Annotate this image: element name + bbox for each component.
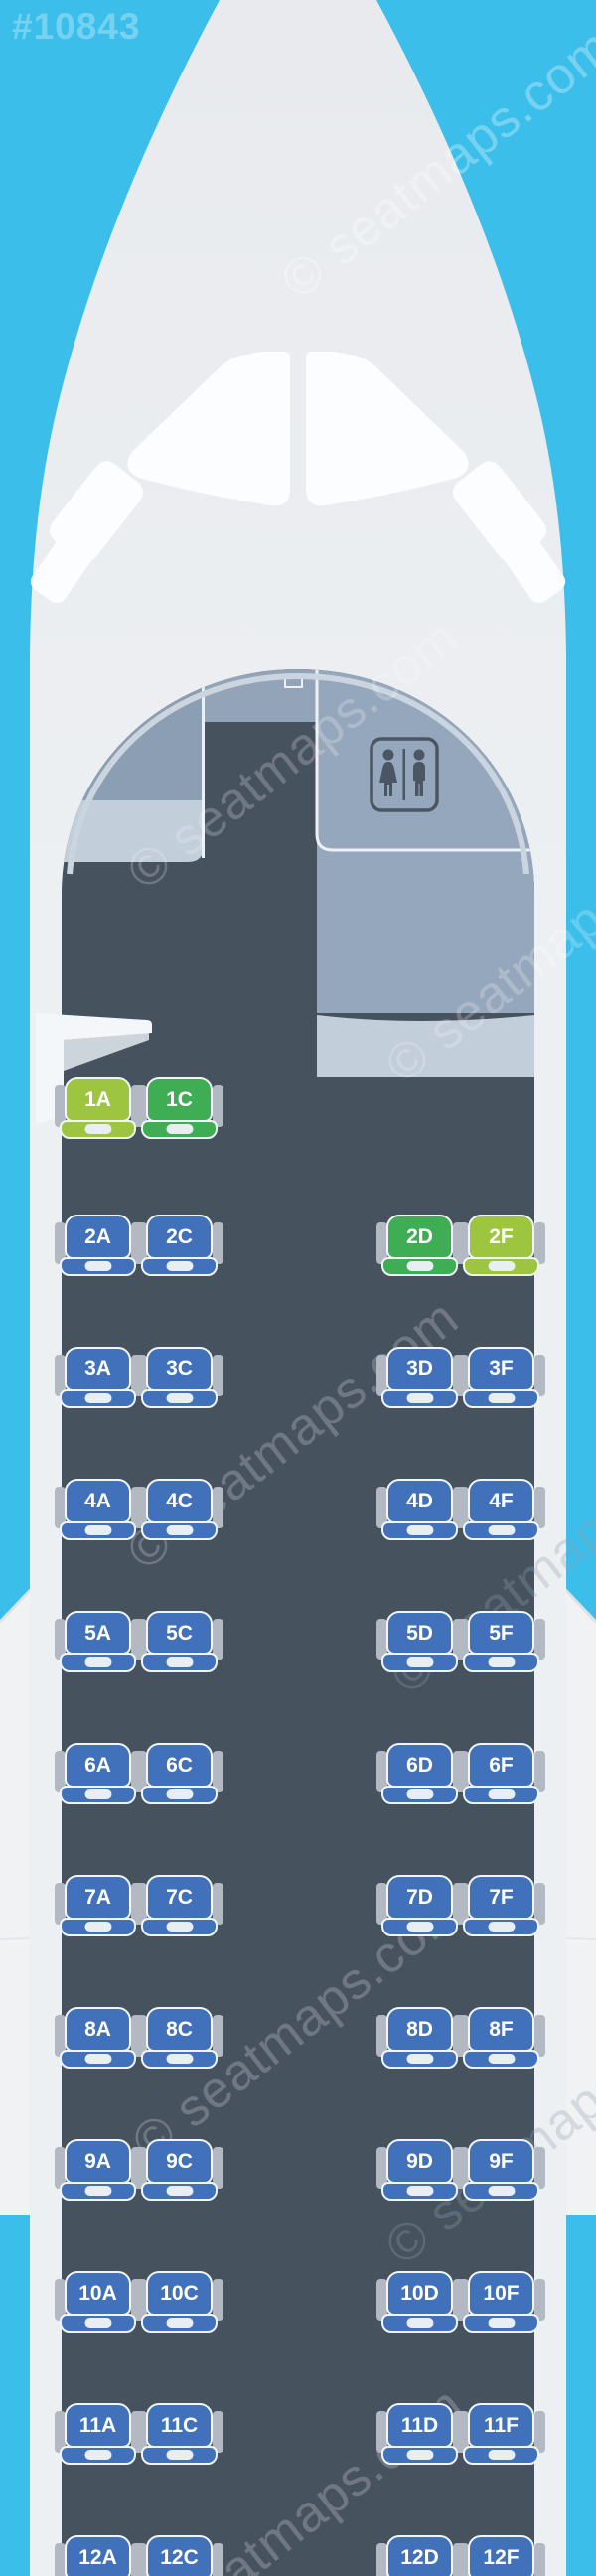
seat-12d[interactable]: 12D xyxy=(386,2535,454,2576)
seat-label: 12A xyxy=(65,2535,131,2576)
seat-7f[interactable]: 7F xyxy=(468,1875,535,1937)
seat-label: 5A xyxy=(65,1611,131,1655)
seat-label: 3A xyxy=(65,1347,131,1391)
seatmap-canvas: #10843 © seatmaps.com© seatmaps.com© sea… xyxy=(0,0,596,2576)
seat-label: 2A xyxy=(65,1215,131,1259)
seat-4a[interactable]: 4A xyxy=(65,1479,132,1541)
seat-cushion-tab xyxy=(167,2318,194,2328)
seat-label: 3D xyxy=(386,1347,453,1391)
seat-label: 1C xyxy=(146,1077,213,1122)
seat-cushion-tab xyxy=(85,1789,112,1799)
seat-label: 11A xyxy=(65,2403,131,2448)
seat-label: 10D xyxy=(386,2271,453,2316)
seat-5d[interactable]: 5D xyxy=(386,1611,454,1673)
seat-label: 9C xyxy=(146,2139,213,2184)
seat-3a[interactable]: 3A xyxy=(65,1347,132,1409)
seat-label: 4C xyxy=(146,1479,213,1523)
seat-label: 8F xyxy=(468,2007,534,2052)
seat-9a[interactable]: 9A xyxy=(65,2139,132,2202)
seat-cushion-tab xyxy=(167,1261,194,1271)
seat-7d[interactable]: 7D xyxy=(386,1875,454,1937)
seat-label: 10C xyxy=(146,2271,213,2316)
seat-6a[interactable]: 6A xyxy=(65,1743,132,1805)
seat-cushion-tab xyxy=(167,1657,194,1667)
seat-10d[interactable]: 10D xyxy=(386,2271,454,2334)
seat-12f[interactable]: 12F xyxy=(468,2535,535,2576)
seat-cushion-tab xyxy=(167,2450,194,2460)
seat-10c[interactable]: 10C xyxy=(146,2271,214,2334)
seat-3c[interactable]: 3C xyxy=(146,1347,214,1409)
seat-9d[interactable]: 9D xyxy=(386,2139,454,2202)
seat-label: 11C xyxy=(146,2403,213,2448)
seat-cushion-tab xyxy=(407,2186,434,2196)
seat-cushion-tab xyxy=(489,1393,516,1403)
seat-7c[interactable]: 7C xyxy=(146,1875,214,1937)
seat-label: 8C xyxy=(146,2007,213,2052)
seat-label: 8D xyxy=(386,2007,453,2052)
seat-cushion-tab xyxy=(167,2054,194,2064)
seat-label: 5F xyxy=(468,1611,534,1655)
seat-8f[interactable]: 8F xyxy=(468,2007,535,2070)
seat-cushion-tab xyxy=(489,2054,516,2064)
seat-cushion-tab xyxy=(489,2450,516,2460)
seat-label: 6A xyxy=(65,1743,131,1788)
seat-cushion-tab xyxy=(489,2318,516,2328)
seat-grid: 1A1C2A2C2D2F3A3C3D3F4A4C4D4F5A5C5D5F6A6C… xyxy=(0,0,596,2576)
seat-cushion-tab xyxy=(85,1922,112,1932)
seat-cushion-tab xyxy=(489,1261,516,1271)
seat-label: 5C xyxy=(146,1611,213,1655)
seat-11a[interactable]: 11A xyxy=(65,2403,132,2466)
seat-cushion-tab xyxy=(407,1525,434,1535)
seat-cushion-tab xyxy=(407,2450,434,2460)
seat-cushion-tab xyxy=(407,1393,434,1403)
seat-3f[interactable]: 3F xyxy=(468,1347,535,1409)
seat-label: 2C xyxy=(146,1215,213,1259)
seat-label: 6D xyxy=(386,1743,453,1788)
seat-8d[interactable]: 8D xyxy=(386,2007,454,2070)
seat-label: 9D xyxy=(386,2139,453,2184)
seat-4d[interactable]: 4D xyxy=(386,1479,454,1541)
seat-2d[interactable]: 2D xyxy=(386,1215,454,1277)
seat-11f[interactable]: 11F xyxy=(468,2403,535,2466)
seat-12c[interactable]: 12C xyxy=(146,2535,214,2576)
seat-cushion-tab xyxy=(407,1789,434,1799)
seat-cushion-tab xyxy=(167,1922,194,1932)
seat-11d[interactable]: 11D xyxy=(386,2403,454,2466)
seat-cushion-tab xyxy=(85,2186,112,2196)
seat-cushion-tab xyxy=(489,2186,516,2196)
seat-label: 12F xyxy=(468,2535,534,2576)
seat-label: 12D xyxy=(386,2535,453,2576)
seat-12a[interactable]: 12A xyxy=(65,2535,132,2576)
seat-cushion-tab xyxy=(407,1922,434,1932)
seat-label: 10F xyxy=(468,2271,534,2316)
seat-6c[interactable]: 6C xyxy=(146,1743,214,1805)
seat-cushion-tab xyxy=(407,1261,434,1271)
seat-label: 11D xyxy=(386,2403,453,2448)
seat-3d[interactable]: 3D xyxy=(386,1347,454,1409)
seat-10a[interactable]: 10A xyxy=(65,2271,132,2334)
seat-4f[interactable]: 4F xyxy=(468,1479,535,1541)
seat-label: 4D xyxy=(386,1479,453,1523)
seat-cushion-tab xyxy=(85,1657,112,1667)
seat-label: 7F xyxy=(468,1875,534,1920)
seat-8a[interactable]: 8A xyxy=(65,2007,132,2070)
seat-label: 7D xyxy=(386,1875,453,1920)
armrest-icon xyxy=(534,2543,545,2576)
seat-2c[interactable]: 2C xyxy=(146,1215,214,1277)
armrest-icon xyxy=(213,2543,223,2576)
seat-label: 9A xyxy=(65,2139,131,2184)
seat-label: 2F xyxy=(468,1215,534,1259)
seat-cushion-tab xyxy=(167,2186,194,2196)
seat-cushion-tab xyxy=(85,1393,112,1403)
seat-1c[interactable]: 1C xyxy=(146,1077,214,1140)
seat-8c[interactable]: 8C xyxy=(146,2007,214,2070)
seat-label: 2D xyxy=(386,1215,453,1259)
seat-label: 4F xyxy=(468,1479,534,1523)
seat-11c[interactable]: 11C xyxy=(146,2403,214,2466)
seat-2a[interactable]: 2A xyxy=(65,1215,132,1277)
seat-6f[interactable]: 6F xyxy=(468,1743,535,1805)
seat-cushion-tab xyxy=(167,1525,194,1535)
seat-cushion-tab xyxy=(407,1657,434,1667)
seat-5c[interactable]: 5C xyxy=(146,1611,214,1673)
seat-cushion-tab xyxy=(85,1261,112,1271)
seat-label: 3F xyxy=(468,1347,534,1391)
seat-cushion-tab xyxy=(85,1124,112,1134)
seat-label: 1A xyxy=(65,1077,131,1122)
seat-cushion-tab xyxy=(489,1525,516,1535)
seat-10f[interactable]: 10F xyxy=(468,2271,535,2334)
seat-9f[interactable]: 9F xyxy=(468,2139,535,2202)
seat-4c[interactable]: 4C xyxy=(146,1479,214,1541)
seat-label: 11F xyxy=(468,2403,534,2448)
seat-5a[interactable]: 5A xyxy=(65,1611,132,1673)
seat-cushion-tab xyxy=(489,1789,516,1799)
seat-cushion-tab xyxy=(167,1789,194,1799)
seat-1a[interactable]: 1A xyxy=(65,1077,132,1140)
seat-cushion-tab xyxy=(85,2054,112,2064)
seat-cushion-tab xyxy=(407,2054,434,2064)
seat-label: 4A xyxy=(65,1479,131,1523)
seat-label: 3C xyxy=(146,1347,213,1391)
seat-cushion-tab xyxy=(85,2450,112,2460)
seat-5f[interactable]: 5F xyxy=(468,1611,535,1673)
seat-cushion-tab xyxy=(85,2318,112,2328)
seat-label: 5D xyxy=(386,1611,453,1655)
seat-label: 12C xyxy=(146,2535,213,2576)
seat-label: 6F xyxy=(468,1743,534,1788)
seat-label: 9F xyxy=(468,2139,534,2184)
seat-cushion-tab xyxy=(407,2318,434,2328)
seat-cushion-tab xyxy=(489,1922,516,1932)
seat-9c[interactable]: 9C xyxy=(146,2139,214,2202)
seat-2f[interactable]: 2F xyxy=(468,1215,535,1277)
seat-label: 10A xyxy=(65,2271,131,2316)
seat-6d[interactable]: 6D xyxy=(386,1743,454,1805)
seat-label: 7C xyxy=(146,1875,213,1920)
seat-7a[interactable]: 7A xyxy=(65,1875,132,1937)
seat-cushion-tab xyxy=(167,1124,194,1134)
seat-cushion-tab xyxy=(489,1657,516,1667)
seat-label: 7A xyxy=(65,1875,131,1920)
seat-cushion-tab xyxy=(85,1525,112,1535)
seat-cushion-tab xyxy=(167,1393,194,1403)
seat-label: 8A xyxy=(65,2007,131,2052)
seat-label: 6C xyxy=(146,1743,213,1788)
